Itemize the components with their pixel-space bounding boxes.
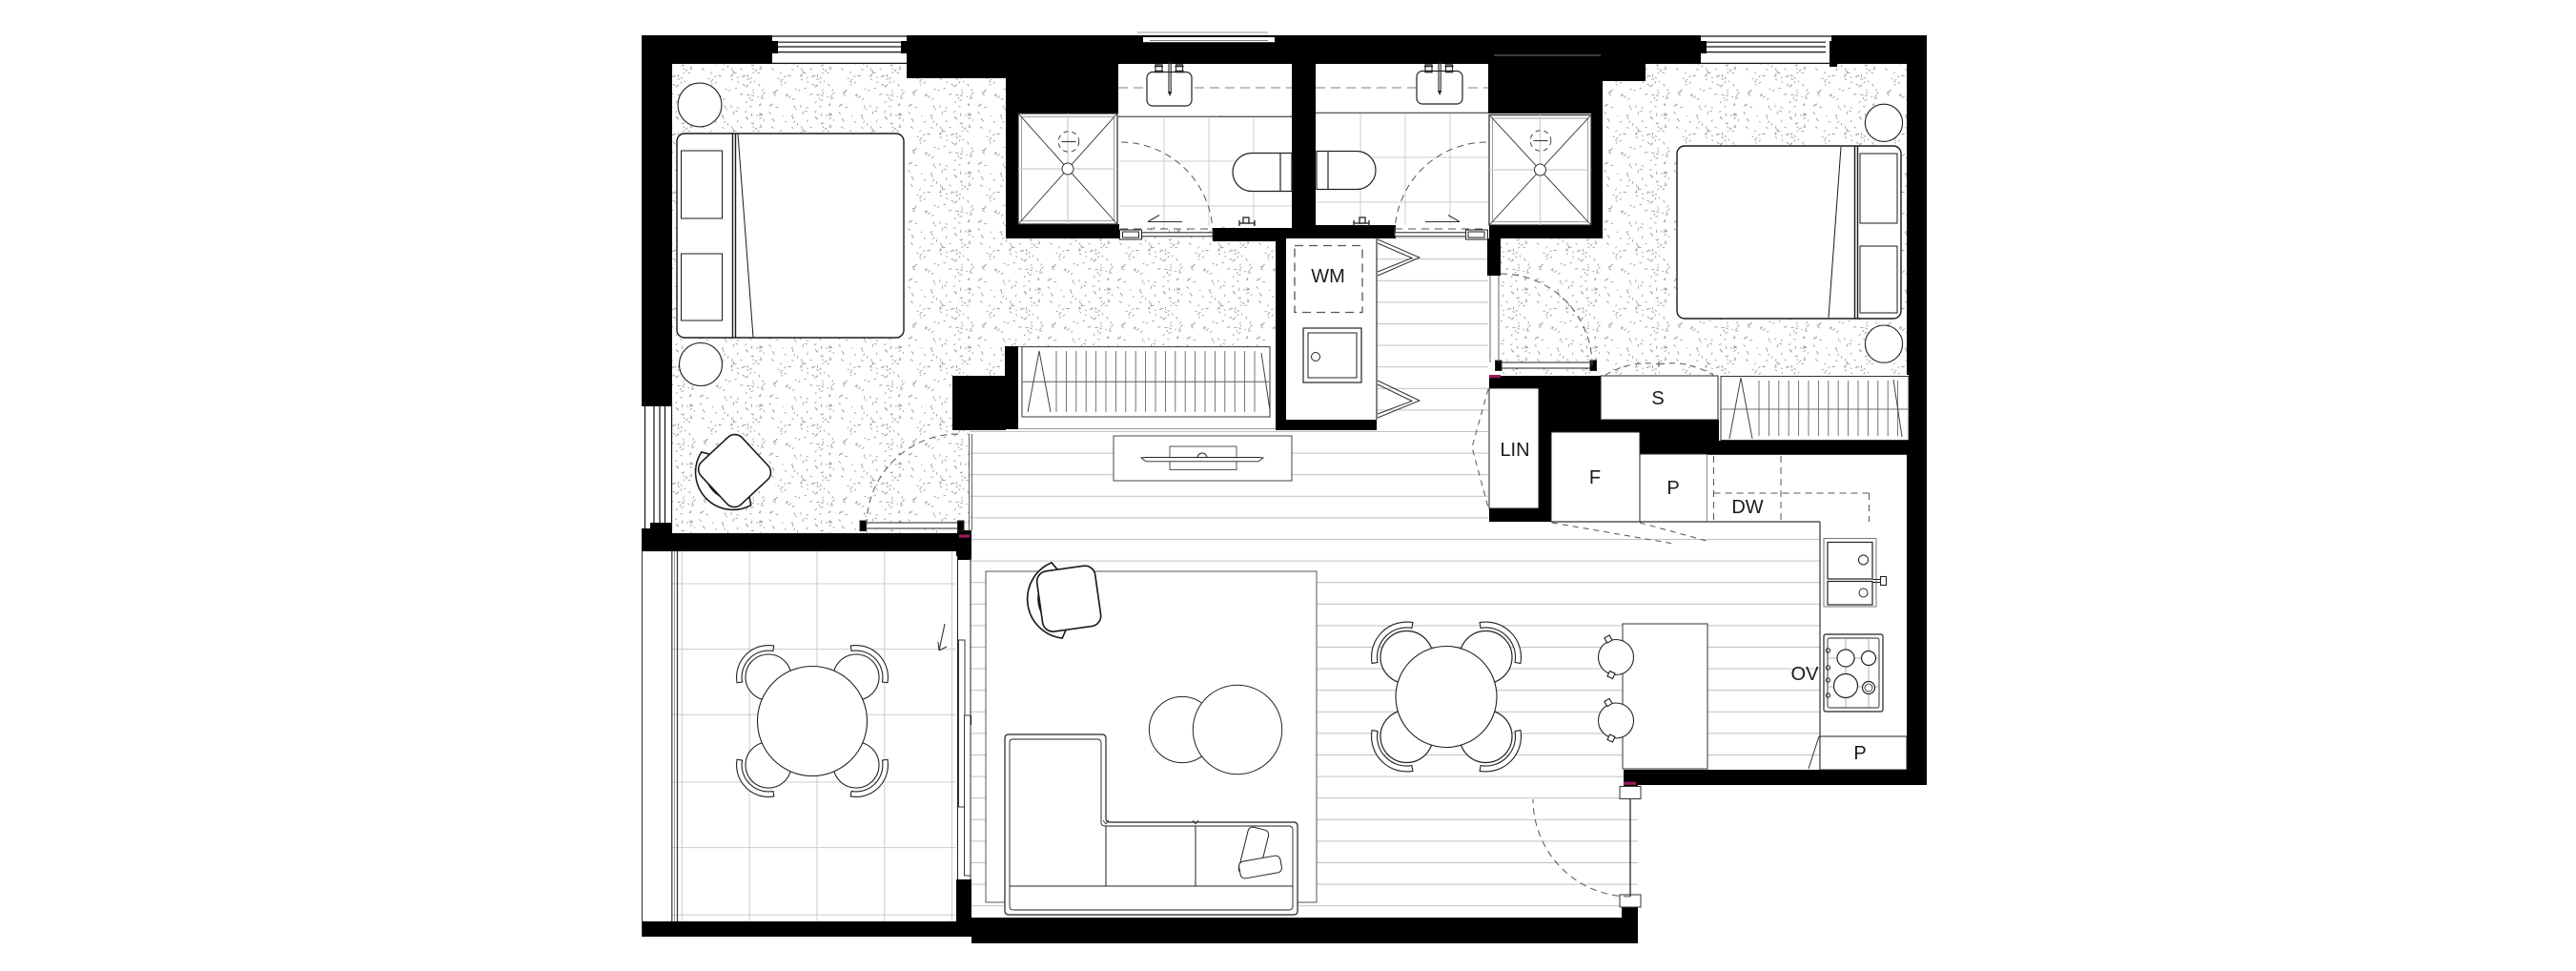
svg-text:OV: OV [1791, 664, 1820, 685]
svg-text:LIN: LIN [1500, 440, 1529, 461]
svg-text:P: P [1666, 478, 1679, 499]
svg-text:DW: DW [1731, 497, 1763, 518]
svg-text:WM: WM [1311, 266, 1345, 287]
svg-text:F: F [1589, 467, 1601, 488]
svg-text:S: S [1651, 388, 1664, 409]
svg-text:P: P [1853, 743, 1866, 764]
